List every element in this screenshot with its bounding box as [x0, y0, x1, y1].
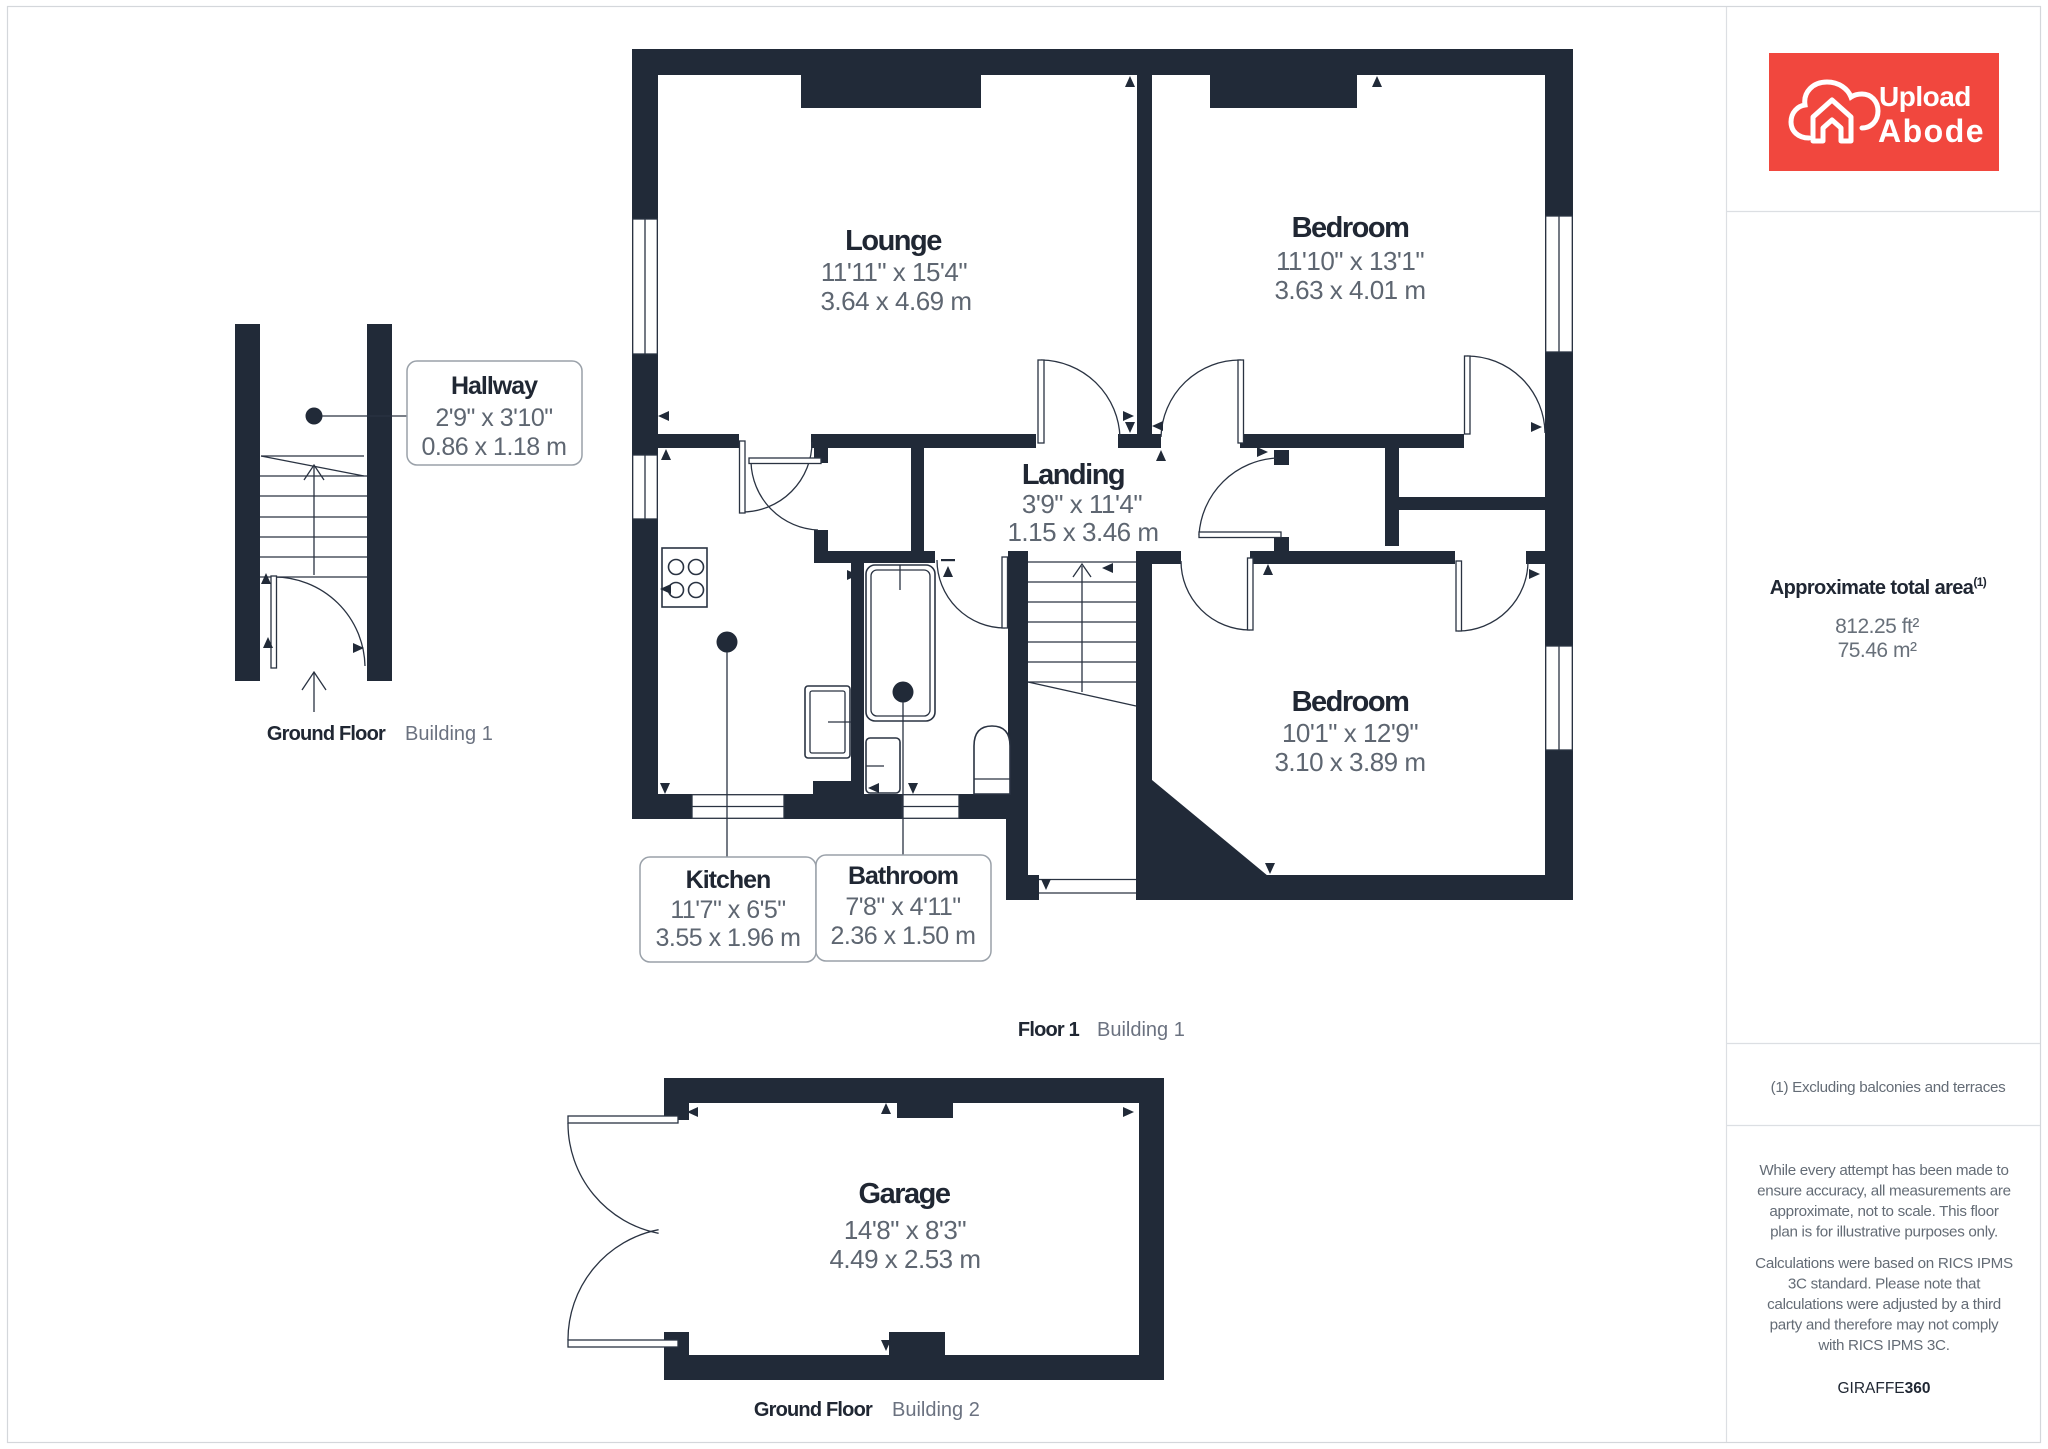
svg-text:11'10" x 13'1": 11'10" x 13'1": [1276, 246, 1424, 276]
svg-text:Bathroom: Bathroom: [848, 862, 958, 890]
svg-text:plan is for illustrative purpo: plan is for illustrative purposes only.: [1770, 1224, 1998, 1241]
svg-text:Bedroom: Bedroom: [1292, 212, 1409, 244]
svg-text:11'11" x 15'4": 11'11" x 15'4": [821, 257, 967, 287]
svg-text:3'9" x 11'4": 3'9" x 11'4": [1022, 489, 1142, 519]
svg-text:Upload: Upload: [1879, 81, 1971, 112]
svg-text:Ground Floor: Ground Floor: [754, 1399, 873, 1421]
svg-text:10'1" x 12'9": 10'1" x 12'9": [1282, 718, 1418, 748]
svg-text:Hallway: Hallway: [451, 372, 538, 400]
svg-text:7'8" x 4'11": 7'8" x 4'11": [845, 893, 960, 921]
svg-text:ensure accuracy, all measureme: ensure accuracy, all measurements are: [1757, 1183, 2011, 1200]
svg-text:3.55 x 1.96 m: 3.55 x 1.96 m: [656, 924, 801, 952]
svg-text:Landing: Landing: [1022, 459, 1124, 491]
svg-text:3C standard. Please note that: 3C standard. Please note that: [1788, 1276, 1981, 1293]
svg-text:1.15 x 3.46 m: 1.15 x 3.46 m: [1007, 517, 1158, 547]
svg-text:2'9" x 3'10": 2'9" x 3'10": [435, 404, 552, 432]
svg-text:75.46 m²: 75.46 m²: [1838, 639, 1917, 662]
svg-text:812.25 ft²: 812.25 ft²: [1835, 615, 1919, 638]
svg-text:3.10 x 3.89 m: 3.10 x 3.89 m: [1274, 747, 1425, 777]
svg-text:calculations were adjusted by: calculations were adjusted by a third: [1767, 1296, 2001, 1313]
svg-text:Abode: Abode: [1878, 113, 1985, 149]
svg-text:3.63 x 4.01 m: 3.63 x 4.01 m: [1274, 275, 1425, 305]
svg-text:Ground Floor: Ground Floor: [267, 723, 386, 745]
svg-text:14'8" x 8'3": 14'8" x 8'3": [844, 1215, 966, 1245]
svg-text:Bedroom: Bedroom: [1292, 686, 1409, 718]
svg-text:4.49 x 2.53 m: 4.49 x 2.53 m: [829, 1244, 980, 1274]
svg-text:approximate, not to scale. Thi: approximate, not to scale. This floor: [1769, 1203, 1998, 1220]
svg-text:Building 1: Building 1: [405, 723, 493, 745]
svg-text:Kitchen: Kitchen: [686, 866, 771, 894]
svg-text:Floor 1: Floor 1: [1018, 1019, 1080, 1041]
svg-text:Lounge: Lounge: [845, 225, 942, 257]
svg-text:(1) Excluding balconies and te: (1) Excluding balconies and terraces: [1771, 1079, 2007, 1096]
svg-text:Building 2: Building 2: [892, 1399, 980, 1421]
svg-text:GIRAFFE360: GIRAFFE360: [1837, 1380, 1930, 1397]
svg-text:with RICS IPMS 3C.: with RICS IPMS 3C.: [1817, 1337, 1949, 1354]
svg-text:2.36 x 1.50 m: 2.36 x 1.50 m: [831, 922, 976, 950]
svg-text:3.64 x 4.69 m: 3.64 x 4.69 m: [820, 286, 971, 316]
svg-text:Approximate total area(1): Approximate total area(1): [1770, 575, 1987, 599]
svg-text:Calculations were based on RIC: Calculations were based on RICS IPMS: [1755, 1255, 2013, 1272]
svg-text:0.86 x 1.18 m: 0.86 x 1.18 m: [422, 433, 567, 461]
svg-text:While every attempt has been m: While every attempt has been made to: [1759, 1162, 2008, 1179]
svg-text:11'7" x 6'5": 11'7" x 6'5": [670, 896, 785, 924]
svg-text:Building 1: Building 1: [1097, 1019, 1185, 1041]
svg-text:party and therefore may not co: party and therefore may not comply: [1770, 1317, 1999, 1334]
svg-text:Garage: Garage: [859, 1178, 951, 1210]
